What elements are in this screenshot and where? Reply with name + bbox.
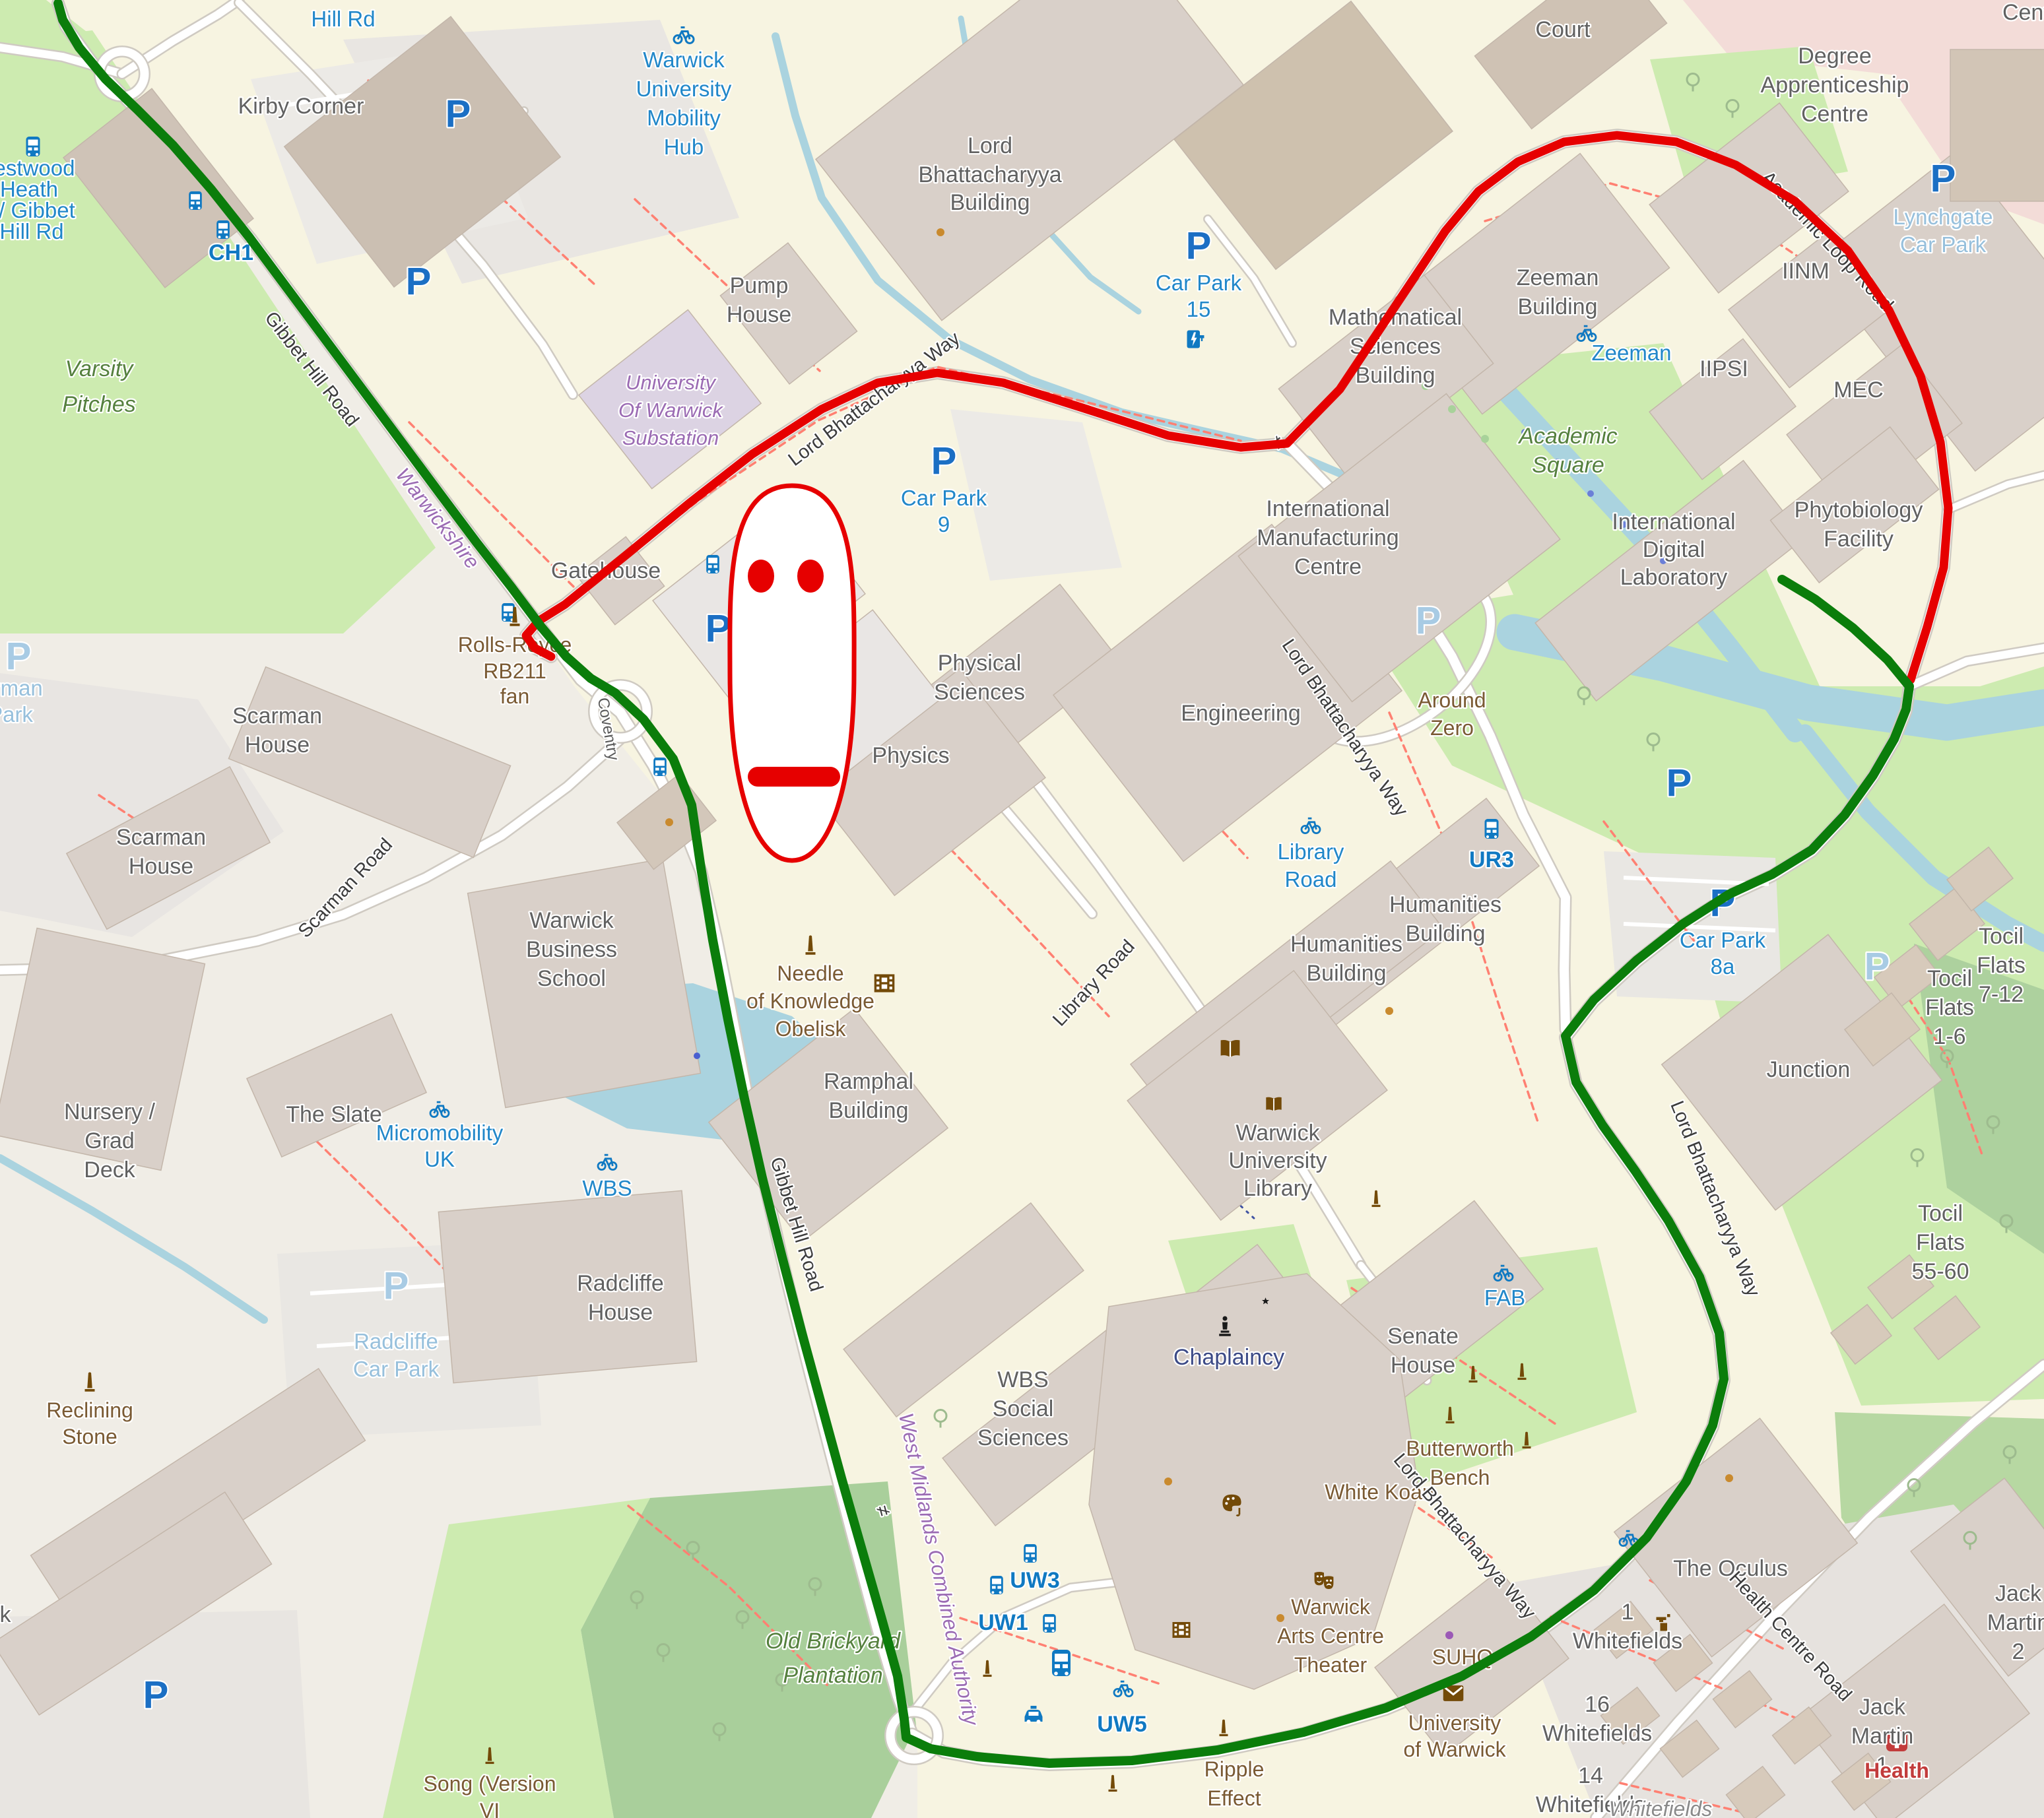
bus-icon	[990, 1576, 1003, 1594]
map-label-car-park: Car Park	[353, 1357, 440, 1381]
map-label-reclining: Reclining	[46, 1398, 133, 1422]
map-label-building: Building	[1518, 294, 1598, 319]
map-label-nursery: Nursery /	[64, 1099, 155, 1124]
map-label-lynchgate: Lynchgate	[1893, 205, 1993, 229]
map-label-k: k	[0, 1602, 12, 1627]
map-label-hill-rd: Hill Rd	[0, 219, 64, 243]
map-label-mec: MEC	[1833, 377, 1884, 403]
building	[1950, 49, 2044, 201]
map-label-scarman: Scarman	[232, 703, 322, 729]
map-label-physics: Physics	[872, 743, 949, 768]
poi-dot	[937, 228, 944, 236]
map-label-building: Building	[1307, 961, 1387, 986]
map-label-fab: FAB	[1484, 1285, 1525, 1310]
map-label-apprenticeship: Apprenticeship	[1761, 73, 1909, 98]
map-label-1: 1	[1622, 1600, 1634, 1625]
poi-dot	[694, 1053, 700, 1059]
map-label-car-park: Car Park	[901, 486, 987, 510]
map-label-uw3: UW3	[1010, 1568, 1060, 1593]
map-label-ur3: UR3	[1469, 847, 1514, 872]
map-label-chaplaincy: Chaplaincy	[1173, 1345, 1284, 1370]
map-label-bench: Bench	[1430, 1466, 1490, 1489]
bus-icon	[653, 758, 667, 776]
map-label-9: 9	[938, 512, 950, 536]
map-label-ripple: Ripple	[1204, 1757, 1265, 1781]
map-label-butterworth: Butterworth	[1406, 1437, 1514, 1460]
map-label-2: 2	[2012, 1639, 2025, 1664]
book-icon	[1221, 1040, 1240, 1057]
map-label-martin: Martin	[1851, 1724, 1913, 1749]
map-label-wbs: WBS	[997, 1367, 1048, 1392]
map-label-p: P	[6, 635, 32, 678]
face-outline	[730, 486, 854, 860]
face-mouth	[748, 767, 840, 787]
map-label-uw5: UW5	[1097, 1712, 1147, 1737]
map-label-engineering: Engineering	[1181, 701, 1300, 726]
map-label-facility: Facility	[1824, 527, 1894, 552]
map-label-whitefields: Whitefields	[1542, 1721, 1652, 1746]
map-label-physical: Physical	[938, 651, 1022, 676]
map-label-lord: Lord	[968, 133, 1012, 158]
map-label-14: 14	[1578, 1763, 1603, 1788]
map-label-16: 16	[1585, 1692, 1610, 1717]
bus-icon	[706, 555, 719, 573]
map-label-flats: Flats	[1977, 953, 2026, 978]
map-label-whitefields: Whitefields	[1573, 1629, 1682, 1654]
map-label-p: P	[1864, 945, 1890, 988]
map-label-bhattacharyya: Bhattacharyya	[918, 162, 1061, 187]
map-label-car-park: Car Park	[1680, 928, 1766, 952]
map-label-digital: Digital	[1643, 537, 1705, 562]
map-label-library: Library	[1278, 839, 1344, 864]
bus-icon	[189, 191, 202, 210]
map-label-warwick: Warwick	[643, 48, 725, 72]
map-label-park: Park	[0, 702, 33, 727]
map-label-warwick: Warwick	[1291, 1595, 1371, 1619]
map-label-p: P	[383, 1264, 409, 1307]
map-label-zeeman: Zeeman	[1591, 341, 1671, 365]
map-label-laboratory: Laboratory	[1620, 565, 1728, 590]
map-label-humanities: Humanities	[1290, 932, 1402, 957]
map-label-15: 15	[1187, 297, 1211, 321]
map-label-centre: Centre	[1294, 554, 1362, 579]
map-label-warwick: Warwick	[1236, 1120, 1320, 1146]
map-label-junction: Junction	[1767, 1057, 1851, 1082]
map-label-1-6: 1-6	[1933, 1024, 1965, 1049]
book-icon	[1266, 1097, 1281, 1111]
bus-icon	[1043, 1614, 1056, 1633]
bus-icon	[1485, 819, 1499, 839]
map-label-whitefields: Whitefields	[1609, 1797, 1713, 1818]
map-label-deck: Deck	[84, 1157, 135, 1183]
map-label-building: Building	[1356, 363, 1435, 388]
map-label-fan: fan	[500, 684, 529, 708]
map-label-tocil: Tocil	[1979, 924, 2024, 949]
map-label-sciences: Sciences	[934, 680, 1025, 705]
poi-dot	[1448, 405, 1456, 413]
map-label-academic: Academic	[1517, 424, 1617, 449]
map-label-kirby-corner: Kirby Corner	[238, 94, 364, 119]
map-label-the-slate: The Slate	[286, 1102, 382, 1127]
map-label-7-12: 7-12	[1979, 982, 2024, 1007]
face-annotation	[730, 486, 854, 860]
map-label-manufacturing: Manufacturing	[1257, 525, 1399, 550]
map-label-iipsi: IIPSI	[1699, 356, 1748, 381]
map-label-zeeman: Zeeman	[1517, 265, 1599, 290]
map-label-wbs: WBS	[582, 1176, 632, 1200]
map-label-micromobility: Micromobility	[376, 1120, 504, 1145]
map-label-55-60: 55-60	[1912, 1259, 1969, 1284]
bus-icon	[1024, 1544, 1037, 1563]
map-label-mobility: Mobility	[647, 106, 721, 130]
map-label-ramphal: Ramphal	[824, 1069, 913, 1094]
map-label-sciences: Sciences	[977, 1425, 1069, 1450]
map-label-radcliffe: Radcliffe	[354, 1329, 438, 1353]
face-right-eye	[797, 560, 824, 593]
film-icon	[874, 974, 895, 992]
poi-dot	[1587, 490, 1594, 497]
map-label-road: Road	[1285, 867, 1337, 892]
map-label-jack: Jack	[1859, 1695, 1906, 1720]
map-label-zero: Zero	[1430, 716, 1474, 740]
map-label-radcliffe: Radcliffe	[577, 1271, 664, 1296]
map-label-senate: Senate	[1387, 1324, 1459, 1349]
poi-dot	[1276, 1614, 1284, 1622]
map-label-hub: Hub	[664, 135, 704, 159]
map-label-house: House	[1391, 1353, 1455, 1378]
bus-icon	[216, 220, 230, 239]
map-label-jack: Jack	[1995, 1581, 2042, 1606]
map-label-p: P	[143, 1673, 169, 1716]
map-label-vi: VI	[480, 1799, 500, 1818]
poi-dot	[1445, 1631, 1453, 1639]
map-label-martin: Martin	[1987, 1610, 2044, 1635]
map-label-car-park: Car Park	[1900, 232, 1987, 257]
map-label-varsity: Varsity	[65, 356, 135, 381]
map-label-university: University	[1408, 1711, 1501, 1735]
map-label-university: University	[636, 77, 732, 101]
map-label-degree: Degree	[1798, 44, 1872, 69]
map-label-uw1: UW1	[978, 1610, 1028, 1635]
map-label-hill-rd: Hill Rd	[311, 7, 375, 31]
map-label-house: House	[588, 1300, 653, 1325]
film-icon	[1173, 1622, 1191, 1638]
map-label-substation: Substation	[622, 426, 719, 449]
map-label-pump: Pump	[730, 273, 789, 298]
map-label-flats: Flats	[1916, 1230, 1965, 1255]
map-label-tocil: Tocil	[1927, 966, 1972, 991]
map-label-8a: 8a	[1711, 954, 1735, 979]
map-label-grad: Grad	[84, 1128, 135, 1153]
map-label-university: University	[1228, 1148, 1327, 1173]
map-label-tocil: Tocil	[1918, 1201, 1963, 1226]
map-label-building: Building	[829, 1098, 909, 1123]
face-left-eye	[748, 560, 774, 593]
map-label-centre: Centre	[2002, 0, 2044, 25]
map-label-ch1: CH1	[209, 240, 253, 265]
bus-icon	[26, 137, 40, 156]
map-label-phytobiology: Phytobiology	[1795, 498, 1923, 523]
map-label-building: Building	[950, 190, 1030, 215]
map-label-p: P	[931, 439, 957, 482]
map-label-theater: Theater	[1294, 1653, 1368, 1677]
map-label-song-version: Song (Version	[423, 1772, 556, 1796]
map-label-square: Square	[1532, 453, 1604, 478]
map-label-of-knowledge: of Knowledge	[746, 989, 874, 1013]
map-label-needle: Needle	[777, 961, 843, 985]
map-label-p: P	[445, 92, 471, 135]
poi-dot	[1164, 1477, 1172, 1485]
map-label-plantation: Plantation	[783, 1663, 882, 1688]
map-label-of-warwick: of Warwick	[1403, 1737, 1506, 1761]
map-label-p: P	[1186, 224, 1212, 267]
envelope-icon	[1443, 1685, 1464, 1701]
map-label-p: P	[706, 607, 731, 650]
map-viewport[interactable]: Hill RdKirby CornerWarwickUniversityMobi…	[0, 0, 2044, 1818]
map-label-business: Business	[526, 937, 617, 962]
map-label-humanities: Humanities	[1389, 892, 1501, 917]
map-label-library: Library	[1243, 1176, 1312, 1201]
poi-dot	[1385, 1007, 1393, 1015]
map-label-effect: Effect	[1207, 1786, 1261, 1810]
map-label-iinm: IINM	[1782, 259, 1830, 284]
map-label-of-warwick: Of Warwick	[618, 399, 723, 422]
map-label-building: Building	[1406, 921, 1486, 946]
map-label-arman: arman	[0, 676, 43, 700]
map-label-p: P	[1930, 157, 1956, 200]
map-label-house: House	[245, 732, 310, 758]
map-label-warwick: Warwick	[529, 908, 614, 933]
map-label-house: House	[727, 302, 791, 327]
poi-dot	[1481, 435, 1489, 443]
map-label-pitches: Pitches	[62, 392, 136, 417]
map-label-around: Around	[1418, 688, 1486, 712]
map-label-flats: Flats	[1925, 995, 1974, 1020]
map-label-arts-centre: Arts Centre	[1277, 1624, 1384, 1648]
map-label-rb211: RB211	[483, 659, 546, 683]
map-label-school: School	[537, 966, 606, 991]
map-canvas: Hill RdKirby CornerWarwickUniversityMobi…	[0, 0, 2044, 1818]
map-label-health: Health	[1864, 1759, 1929, 1782]
map-label-centre: Centre	[1801, 102, 1868, 127]
map-label-international: International	[1612, 509, 1735, 535]
map-label-car-park: Car Park	[1156, 271, 1242, 295]
map-label-social: Social	[993, 1396, 1054, 1421]
map-label-court: Court	[1535, 17, 1591, 42]
poi-dot	[1725, 1474, 1733, 1482]
bus-icon	[1052, 1650, 1071, 1676]
map-label-international: International	[1266, 496, 1389, 521]
map-label-p: P	[1416, 599, 1441, 642]
map-label-stone: Stone	[62, 1425, 117, 1448]
map-label-house: House	[129, 854, 193, 879]
poi-dot	[665, 818, 673, 826]
map-label-uk: UK	[424, 1147, 455, 1171]
map-label-p: P	[1666, 762, 1692, 804]
map-label-p: P	[406, 260, 432, 303]
map-label-obelisk: Obelisk	[775, 1017, 847, 1041]
map-label-university: University	[626, 371, 717, 394]
map-label-scarman: Scarman	[116, 825, 206, 850]
